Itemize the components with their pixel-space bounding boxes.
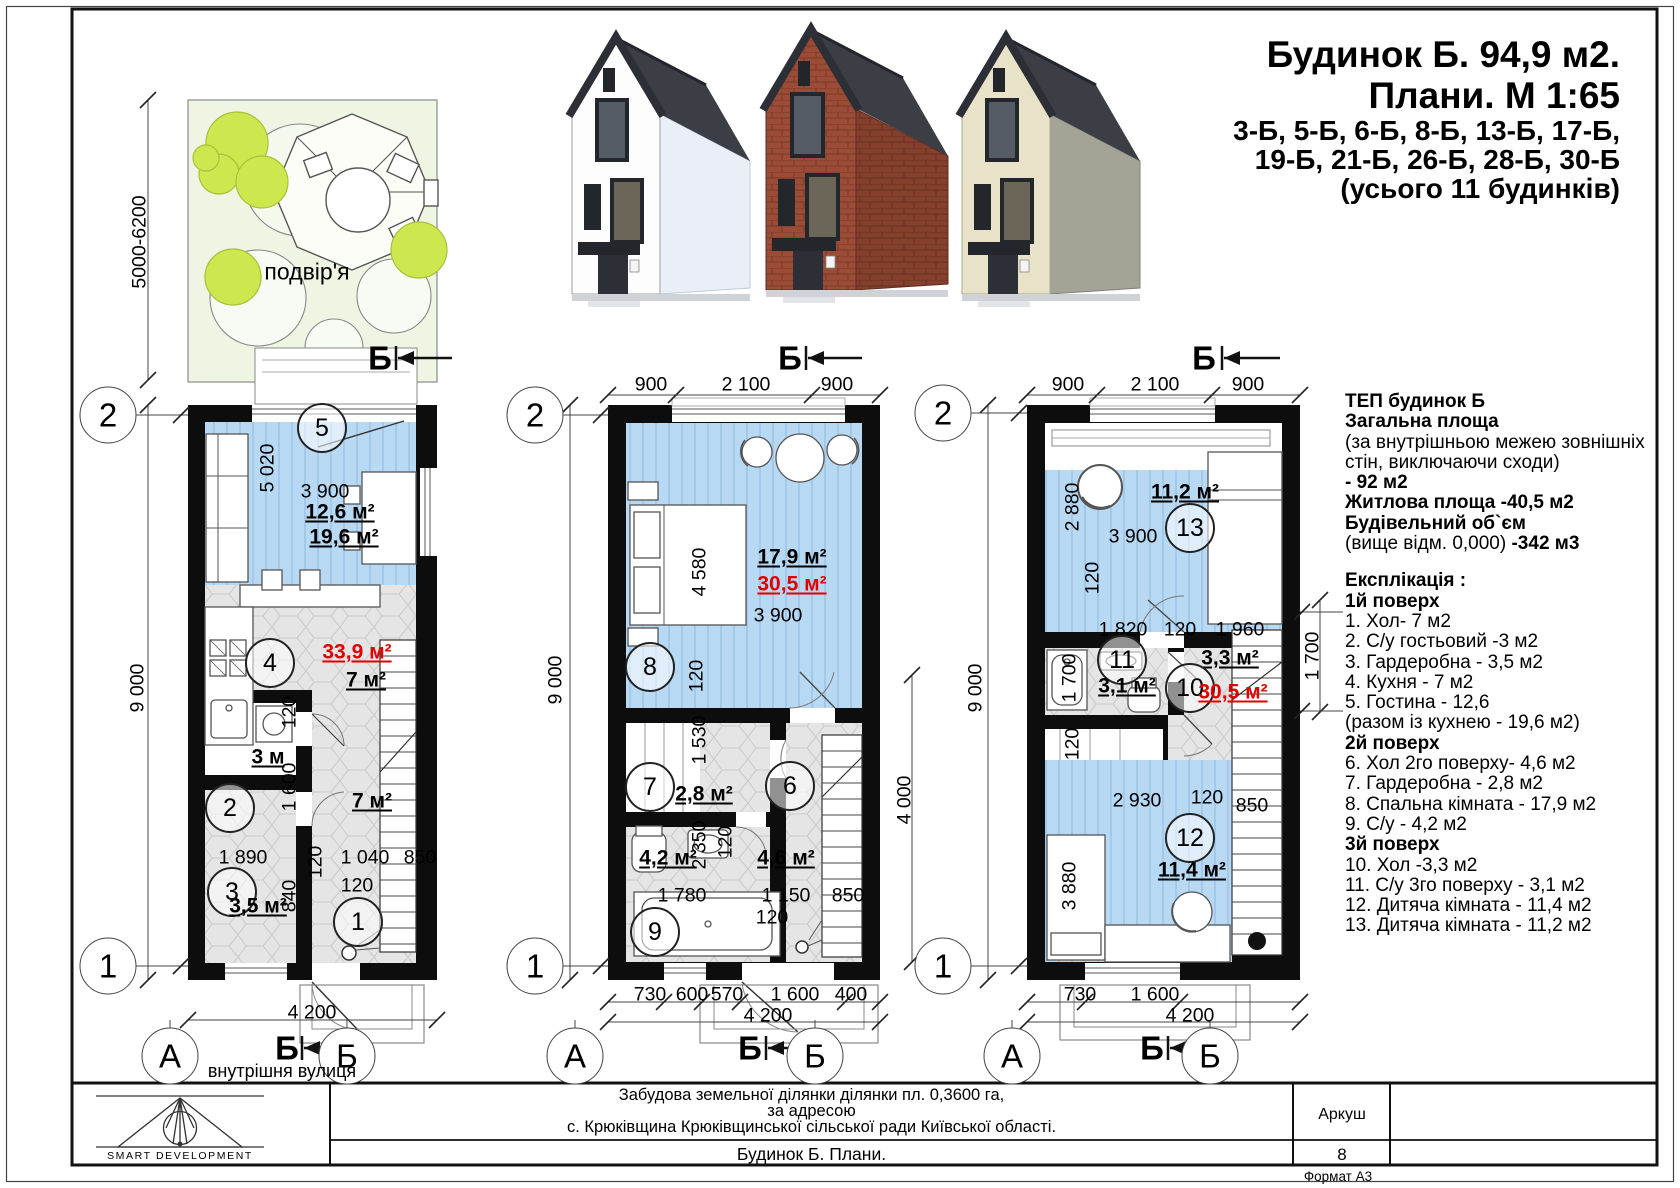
info-line: стін, виключаючи сходи) — [1345, 453, 1650, 473]
info-line: Експлікація : — [1345, 571, 1650, 591]
info-line: 4. Кухня - 7 м2 — [1345, 673, 1650, 693]
sheet-title-line1: Будинок Б. 94,9 м2. — [1020, 34, 1620, 75]
sheet-number: 8 — [1296, 1145, 1388, 1165]
info-line: - 92 м2 — [1345, 473, 1650, 493]
format-label: Формат А3 — [1278, 1169, 1398, 1184]
smart-development-logo — [96, 1096, 264, 1147]
info-line: 13. Дитяча кімната - 11,2 м2 — [1345, 916, 1650, 936]
house-count: (усього 11 будинків) — [1020, 174, 1620, 203]
info-line: (разом із кухнею - 19,6 м2) — [1345, 713, 1650, 733]
info-line: 6. Хол 2го поверху- 4,6 м2 — [1345, 754, 1650, 774]
info-line: 12. Дитяча кімната - 11,4 м2 — [1345, 896, 1650, 916]
info-line: 1й поверх — [1345, 592, 1650, 612]
info-line: 8. Спальна кімната - 17,9 м2 — [1345, 795, 1650, 815]
info-line: 9. С/у - 4,2 м2 — [1345, 815, 1650, 835]
document-title: Будинок Б. Плани. — [332, 1144, 1291, 1165]
floor-plan-2 — [561, 346, 920, 1060]
info-line: (вище відм. 0,000) -342 м3 — [1345, 534, 1650, 554]
tep-and-explication: ТЕП будинок БЗагальна площа(за внутрішнь… — [1345, 392, 1650, 937]
info-line: 3й поверх — [1345, 835, 1650, 855]
info-line: Будівельний об`єм — [1345, 514, 1650, 534]
sheet-title-line2: Плани. М 1:65 — [1020, 75, 1620, 116]
project-description: Забудова земельної ділянки ділянки пл. 0… — [332, 1088, 1291, 1135]
sheet-label: Аркуш — [1296, 1106, 1388, 1124]
house-numbers-line2: 19-Б, 21-Б, 26-Б, 28-Б, 30-Б — [1020, 145, 1620, 174]
info-line: (за внутрішньою межею зовнішніх — [1345, 433, 1650, 453]
floor-plan-1 — [134, 346, 452, 1060]
info-line: 5. Гостина - 12,6 — [1345, 693, 1650, 713]
info-line: ТЕП будинок Б — [1345, 392, 1650, 412]
info-line: Житлова площа -40,5 м2 — [1345, 493, 1650, 513]
info-line: 11. С/у 3го поверху - 3,1 м2 — [1345, 876, 1650, 896]
logo-text: SMART DEVELOPMENT — [84, 1150, 276, 1162]
sheet-title: Будинок Б. 94,9 м2. Плани. М 1:65 3-Б, 5… — [1020, 34, 1620, 203]
info-line — [1345, 554, 1650, 571]
house-numbers-line1: 3-Б, 5-Б, 6-Б, 8-Б, 13-Б, 17-Б, — [1020, 116, 1620, 145]
drawing-sheet: Будинок Б. 94,9 м2. Плани. М 1:65 3-Б, 5… — [0, 0, 1680, 1188]
info-line: 3. Гардеробна - 3,5 м2 — [1345, 653, 1650, 673]
floor-plan-3 — [969, 346, 1343, 1060]
info-line: 10. Хол -3,3 м2 — [1345, 856, 1650, 876]
info-line: 2й поверх — [1345, 734, 1650, 754]
info-line: 1. Хол- 7 м2 — [1345, 612, 1650, 632]
info-line: 2. С/у гостьовий -3 м2 — [1345, 632, 1650, 652]
info-line: Загальна площа — [1345, 412, 1650, 432]
house-render-white — [569, 37, 750, 307]
project-line3: с. Крюківщина Крюківщинської сільської р… — [332, 1120, 1291, 1136]
house-render-brick — [763, 29, 948, 303]
info-line: 7. Гардеробна - 2,8 м2 — [1345, 774, 1650, 794]
